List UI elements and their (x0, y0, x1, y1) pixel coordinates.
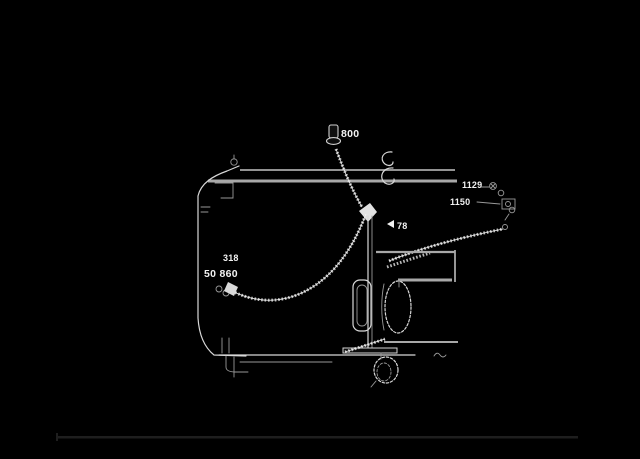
bolt-head-icon (329, 125, 338, 138)
top-rails (208, 170, 457, 181)
engine-edge (353, 216, 411, 352)
panel-top-tab (215, 183, 233, 198)
panel-bottom-bracket (226, 356, 248, 372)
cable-hatch (232, 214, 366, 300)
callout-78: 78 (397, 221, 407, 231)
divider-end-tick (56, 433, 58, 441)
right-parts (477, 183, 515, 220)
callout-800: 800 (341, 128, 359, 140)
footer-divider (56, 433, 578, 441)
bottom-assembly (219, 339, 458, 387)
callout-1129: 1129 (462, 180, 482, 190)
callout-1150: 1150 (450, 197, 470, 207)
cable-line (389, 229, 503, 261)
cylinder-edge (382, 284, 384, 330)
cable-hatch (389, 229, 503, 261)
panel-bottom-tab (222, 338, 229, 353)
panel-edge (198, 166, 246, 356)
cable-end-ring (503, 225, 508, 230)
circlip (382, 152, 394, 184)
coil-tail (371, 381, 376, 387)
arrow-left-icon (387, 220, 394, 228)
squiggle-mark (434, 353, 446, 357)
spring-coil-inner (377, 363, 391, 381)
bolt-icon (506, 202, 511, 207)
grommet-inner (357, 285, 367, 326)
mid-box (376, 250, 455, 287)
screw-icon (231, 159, 237, 165)
cylinder-arc (385, 281, 411, 333)
cable-end-ring (216, 286, 222, 292)
cable-line (232, 214, 366, 300)
panel-ticks (201, 207, 210, 212)
parts-diagram: 800 78 318 50 860 1129 1150 (0, 0, 640, 459)
leader-line (477, 202, 500, 204)
washer-icon (509, 207, 515, 213)
callout-318: 318 (223, 253, 239, 263)
clip-ring-icon (382, 152, 393, 166)
washer-icon (498, 190, 504, 196)
panel-outline (198, 155, 248, 377)
washer-icon (327, 138, 341, 145)
bolt-tip (505, 214, 509, 220)
bolt-shaft-hatch (336, 149, 362, 207)
divider-rule (57, 436, 578, 439)
screw-cross (491, 184, 495, 188)
callout-50-860: 50 860 (204, 268, 238, 280)
page: 800 78 318 50 860 1129 1150 (0, 0, 640, 459)
